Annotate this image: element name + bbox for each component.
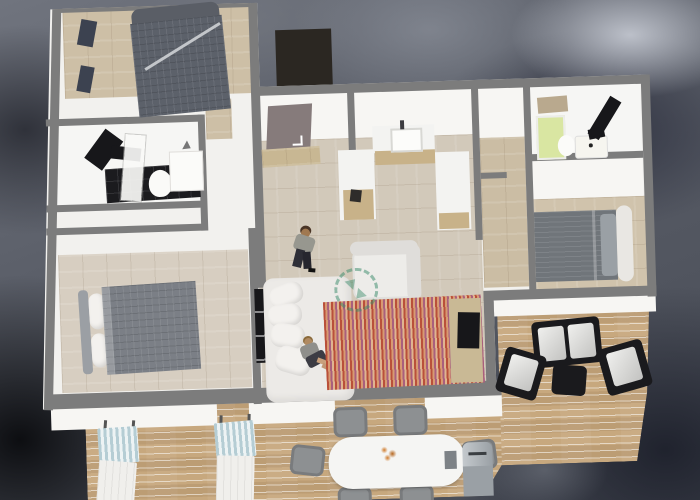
grill [456,442,498,497]
bed-pillow [600,214,618,276]
dining-chair [333,407,368,438]
armchair-back-right [406,244,422,300]
bed-duvet [102,281,202,375]
floorplan-scene [0,0,700,500]
wall-corridor-stub [481,172,507,179]
lounger-headrest [97,426,139,465]
lounger-cushion [96,460,138,500]
ottoman [551,364,587,396]
corridor-north-face [478,87,525,137]
kitchen-right-cabinet-face [439,212,469,229]
dining-chair [289,444,326,477]
grill-handle [468,452,486,456]
flower-centerpiece [376,441,403,464]
tv-on-sideboard [457,312,480,348]
person-leg [303,252,312,269]
bed-duvet [130,15,231,118]
bed-bottom-left [78,281,202,377]
door-handle-mark [292,135,302,145]
bed-headboard [616,205,634,281]
watermark-arrow [352,288,367,303]
sun-lounger [94,424,144,500]
dining-chair [393,405,428,436]
bedroom-right-north-face [532,158,643,199]
lounger-cushion [216,455,255,500]
person-shoe [308,268,315,273]
coffee-maker [350,189,362,202]
walls [0,0,692,11]
loveseat-cushion [567,322,596,358]
dark-exterior-patch [275,28,333,87]
entrance-door [266,103,312,152]
kitchen-faucet [400,120,404,129]
lounger-headrest [214,420,257,459]
sun-lounger [214,419,260,500]
bed-top-left [127,1,234,120]
scene-background [0,0,700,500]
bath-counter-right [169,151,204,192]
grill-body [463,466,494,497]
kitchen-sink [390,128,423,153]
grill-side-table [444,451,457,469]
sink-faucet-dot [589,143,593,147]
bed-right [534,205,636,284]
chair-cushion [503,353,539,392]
door-threshold [262,146,321,168]
bathroom-right-tan-patch [537,95,568,113]
corridor-floor [480,136,530,287]
chair-cushion [605,346,643,387]
south-wall-face-right [425,394,503,418]
person-standing [284,222,322,274]
